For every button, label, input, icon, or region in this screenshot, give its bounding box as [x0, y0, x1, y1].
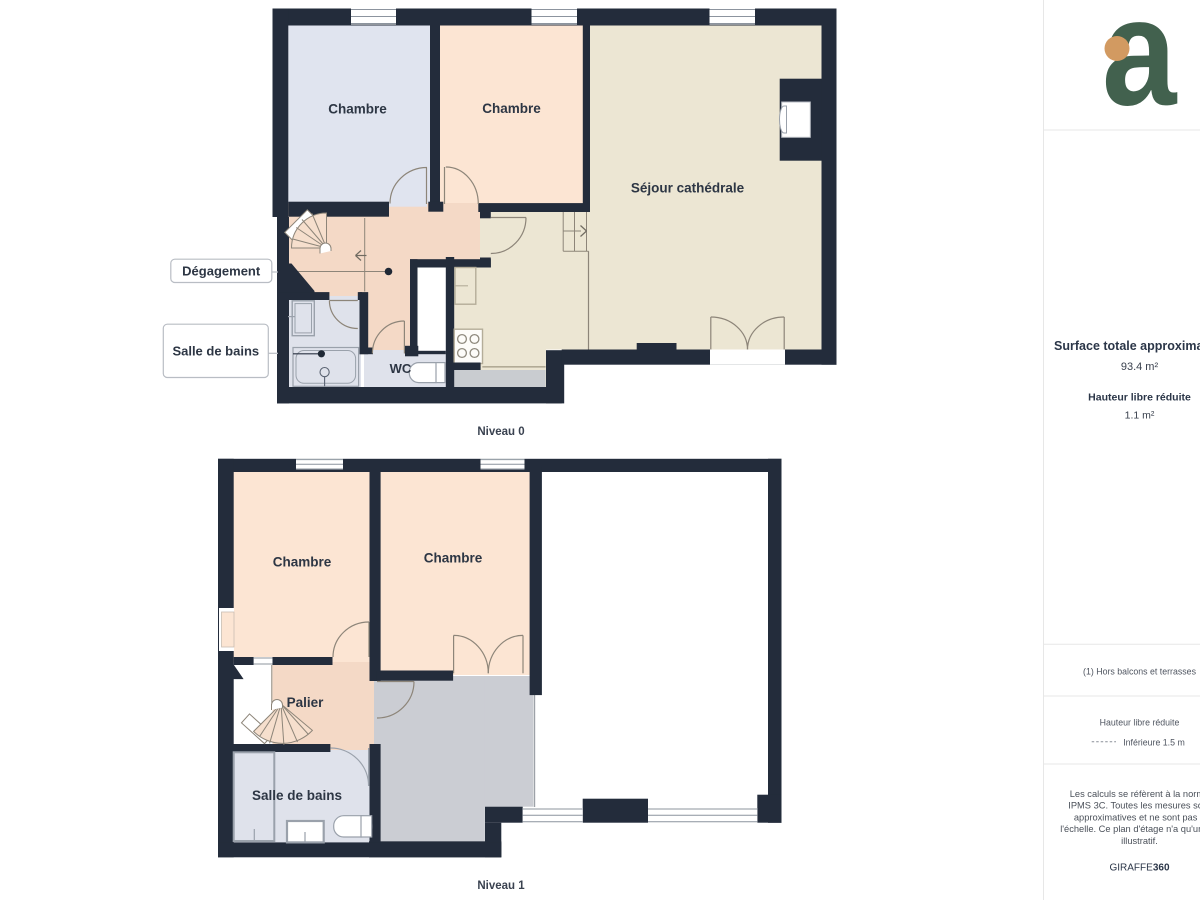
svg-text:a: a: [1102, 0, 1177, 137]
svg-text:Hauteur libre réduite: Hauteur libre réduite: [1088, 392, 1191, 404]
svg-text:illustratif.: illustratif.: [1121, 836, 1158, 846]
svg-text:approximatives et ne sont pas: approximatives et ne sont pas à: [1074, 812, 1200, 822]
svg-text:Les calculs se réfèrent à la n: Les calculs se réfèrent à la norme: [1070, 789, 1200, 799]
svg-text:Salle de bains: Salle de bains: [172, 343, 259, 358]
svg-text:Chambre: Chambre: [424, 551, 483, 566]
svg-text:Chambre: Chambre: [328, 102, 387, 117]
svg-text:IPMS 3C. Toutes les mesures so: IPMS 3C. Toutes les mesures sont: [1068, 801, 1200, 811]
svg-text:Chambre: Chambre: [273, 555, 332, 570]
svg-text:Palier: Palier: [287, 695, 325, 710]
svg-text:Salle de bains: Salle de bains: [252, 788, 342, 803]
svg-text:l'échelle. Ce plan d'étage n'a: l'échelle. Ce plan d'étage n'a qu'un but: [1060, 824, 1200, 834]
svg-text:Niveau 1: Niveau 1: [477, 880, 525, 892]
svg-text:Inférieure 1.5 m: Inférieure 1.5 m: [1123, 737, 1185, 747]
svg-text:Hauteur libre réduite: Hauteur libre réduite: [1100, 718, 1180, 728]
svg-text:Surface totale approximative: Surface totale approximative: [1054, 339, 1200, 353]
svg-text:Dégagement: Dégagement: [182, 264, 261, 279]
svg-text:(1) Hors balcons et terrasses: (1) Hors balcons et terrasses: [1083, 667, 1197, 677]
svg-text:Chambre: Chambre: [482, 101, 541, 116]
svg-text:1.1 m²: 1.1 m²: [1125, 410, 1155, 422]
svg-text:GIRAFFE360: GIRAFFE360: [1109, 863, 1169, 874]
svg-text:Niveau 0: Niveau 0: [477, 426, 524, 438]
svg-text:WC: WC: [390, 361, 412, 376]
svg-text:Séjour cathédrale: Séjour cathédrale: [631, 181, 745, 196]
svg-text:93.4 m²: 93.4 m²: [1121, 361, 1159, 373]
